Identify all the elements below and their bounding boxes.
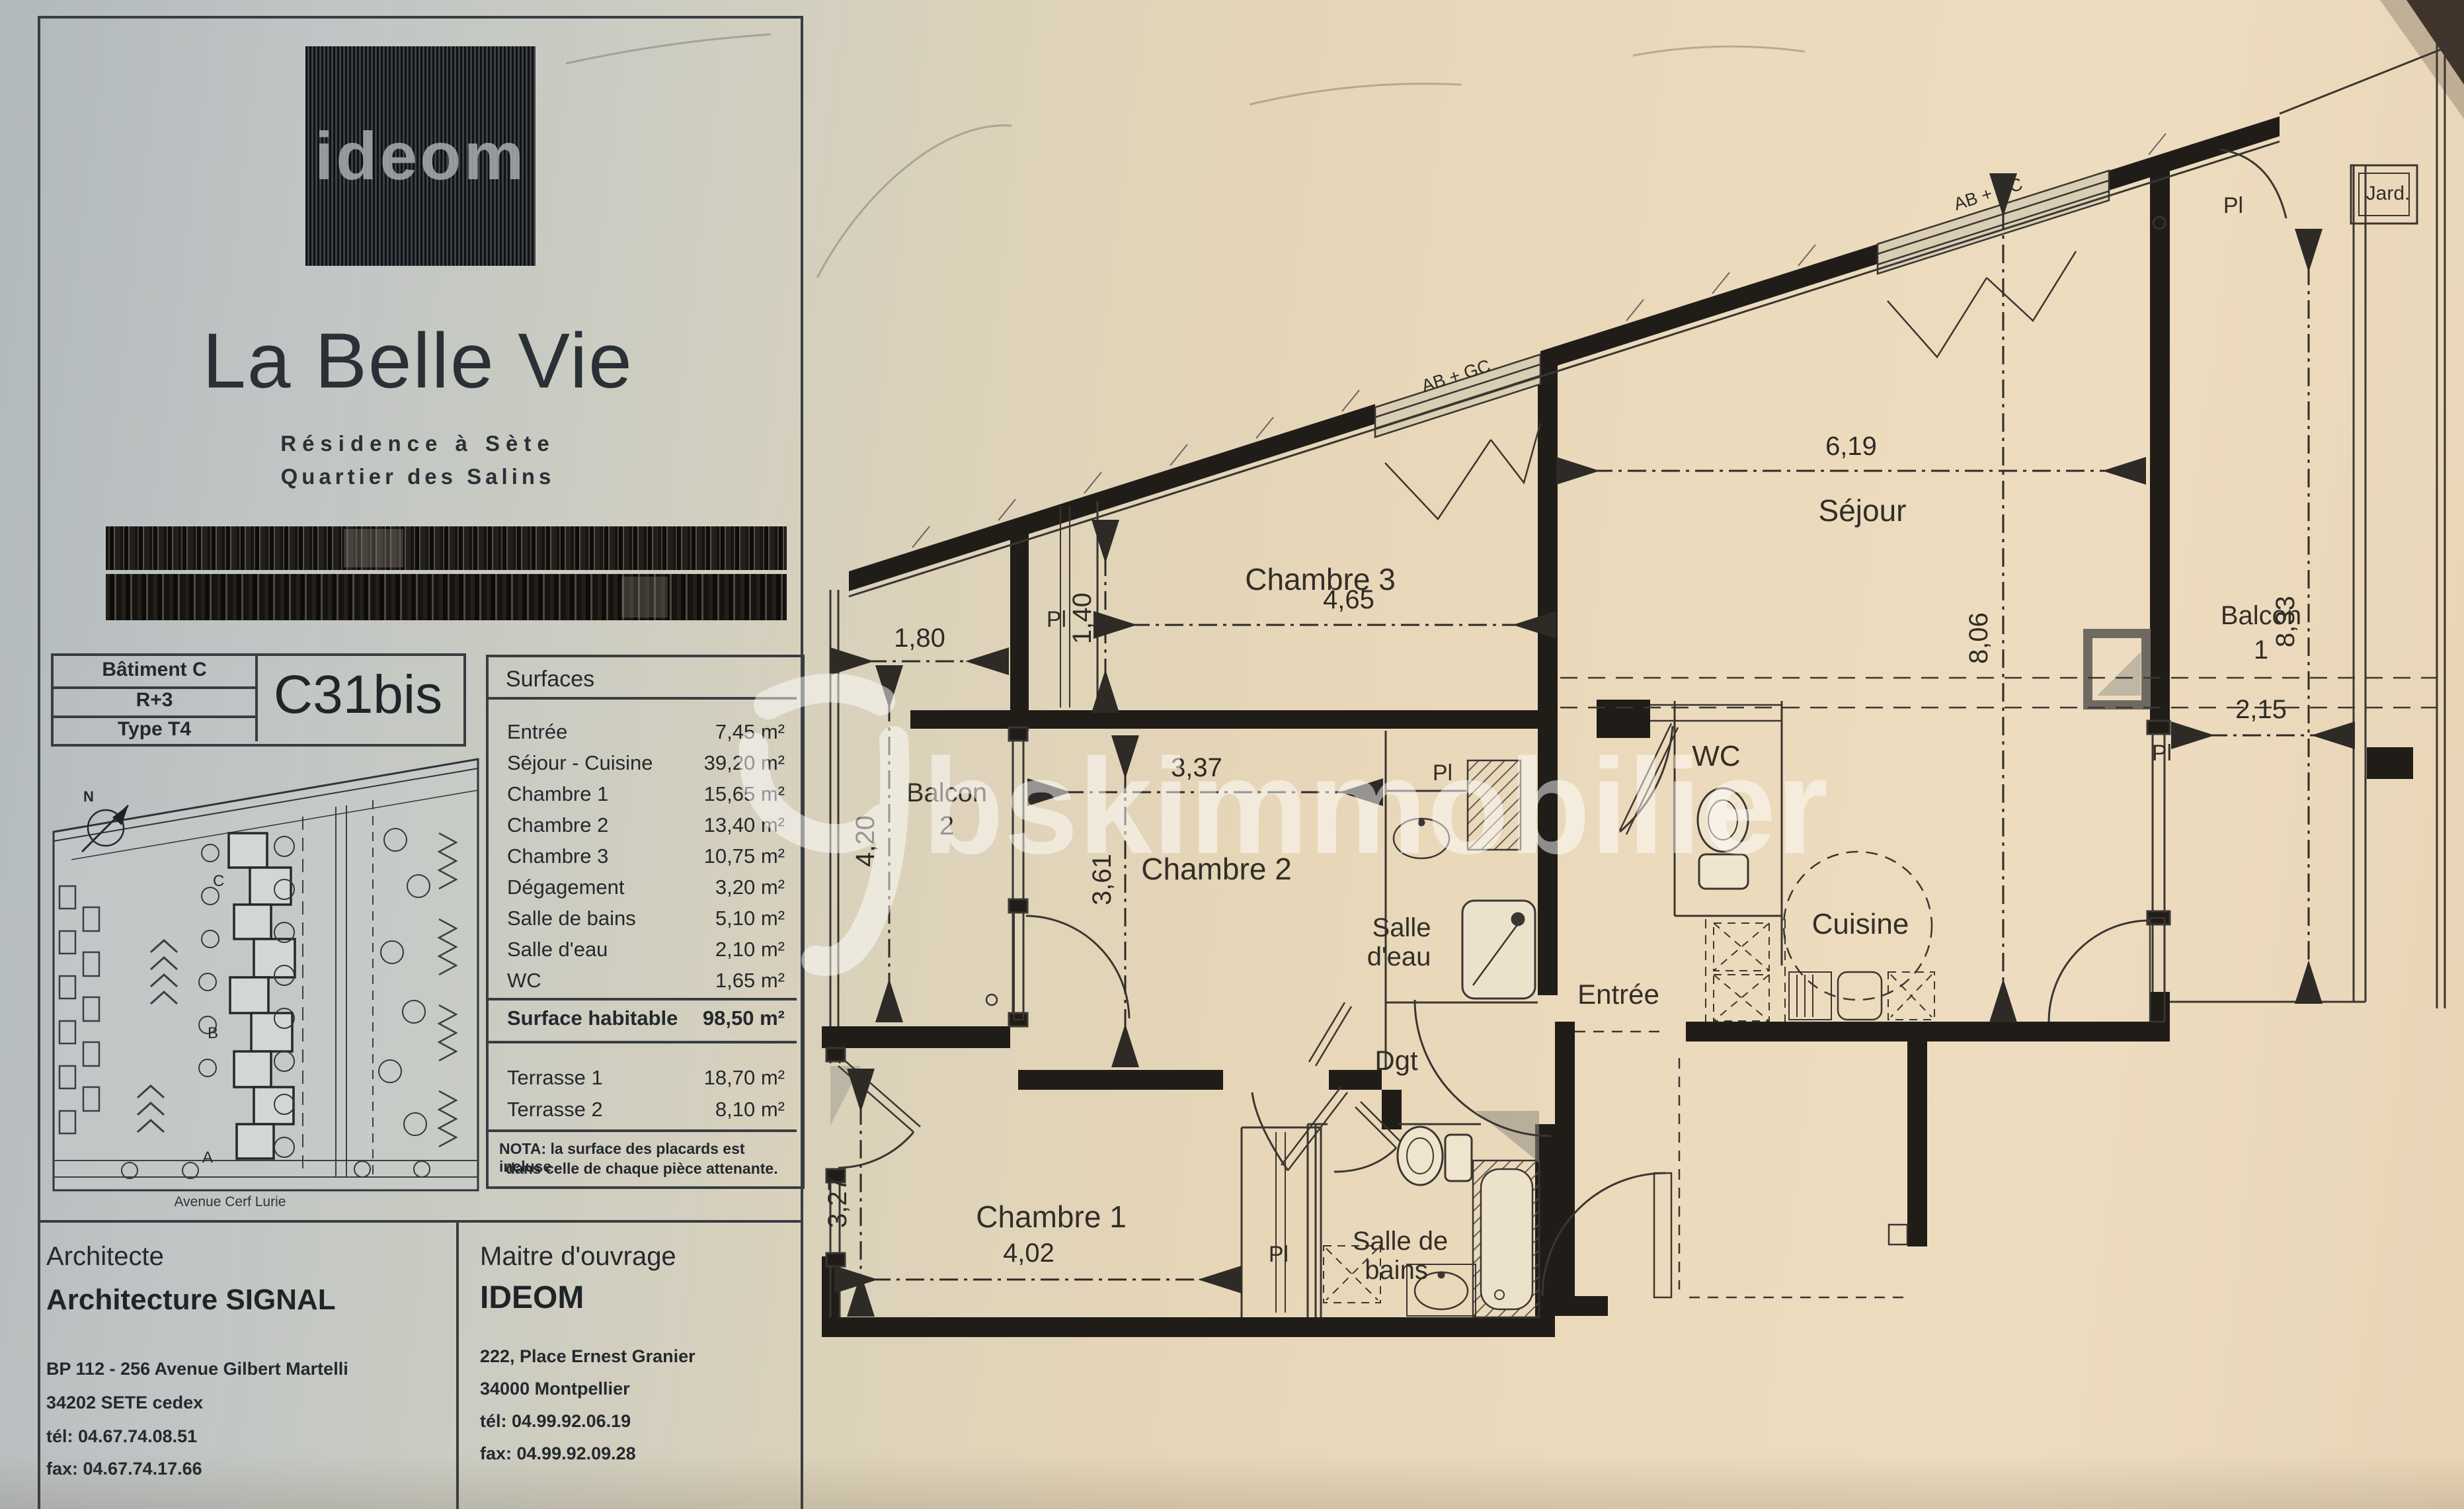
closet-label-chambre3: Pl — [1047, 607, 1066, 632]
dim-1-80: 1,80 — [894, 624, 945, 653]
dim-2-15: 2,15 — [2235, 695, 2287, 724]
room-label-balcon-1: Balcon — [2221, 601, 2301, 630]
closet-label-balcon1: Pl — [2152, 741, 2172, 766]
room-label-chambre-1: Chambre 1 — [976, 1200, 1127, 1234]
room-label-salle-eau-2: d'eau — [1367, 942, 1431, 971]
room-label-chambre-3: Chambre 3 — [1245, 562, 1396, 596]
photo-bottom-shadow — [0, 1455, 2464, 1509]
photo-artifacts — [566, 0, 2464, 278]
walls — [822, 116, 2413, 1337]
scanned-floorplan-sheet: ideom La Belle Vie Résidence à Sète Quar… — [0, 0, 2464, 1509]
closet-label-chambre1: Pl — [1269, 1242, 1289, 1267]
room-label-salle-bains-1: Salle de — [1353, 1227, 1449, 1256]
window-labels: AB + GC AB + GC — [1419, 174, 2025, 396]
room-label-dgt: Dgt — [1374, 1045, 1418, 1076]
room-label-entree: Entrée — [1577, 979, 1659, 1010]
thin-lines — [826, 40, 2455, 1317]
dim-8-06: 8,06 — [1964, 612, 1993, 664]
floor-plan: 1,80 1,40 4,65 6,19 8,06 8,33 2,15 4,20 … — [0, 0, 2464, 1509]
room-label-balcon-1-num: 1 — [2254, 635, 2268, 665]
dim-1-40: 1,40 — [1068, 592, 1097, 644]
watermark-text: bskimmobilier — [922, 731, 1828, 882]
dim-3-27: 3,27 — [823, 1176, 852, 1228]
room-label-cuisine: Cuisine — [1812, 908, 1909, 940]
room-label-sejour: Séjour — [1819, 493, 1907, 528]
closet-label-terrace: Pl — [2223, 193, 2243, 218]
room-label-salle-bains-2: bains — [1365, 1256, 1428, 1285]
dim-6-19: 6,19 — [1825, 432, 1877, 461]
dim-4-02: 4,02 — [1003, 1239, 1054, 1268]
watermark: bskimmobilier — [754, 688, 1828, 961]
room-label-salle-eau-1: Salle — [1372, 913, 1431, 942]
jardiniere-label: Jard. — [2366, 183, 2410, 204]
